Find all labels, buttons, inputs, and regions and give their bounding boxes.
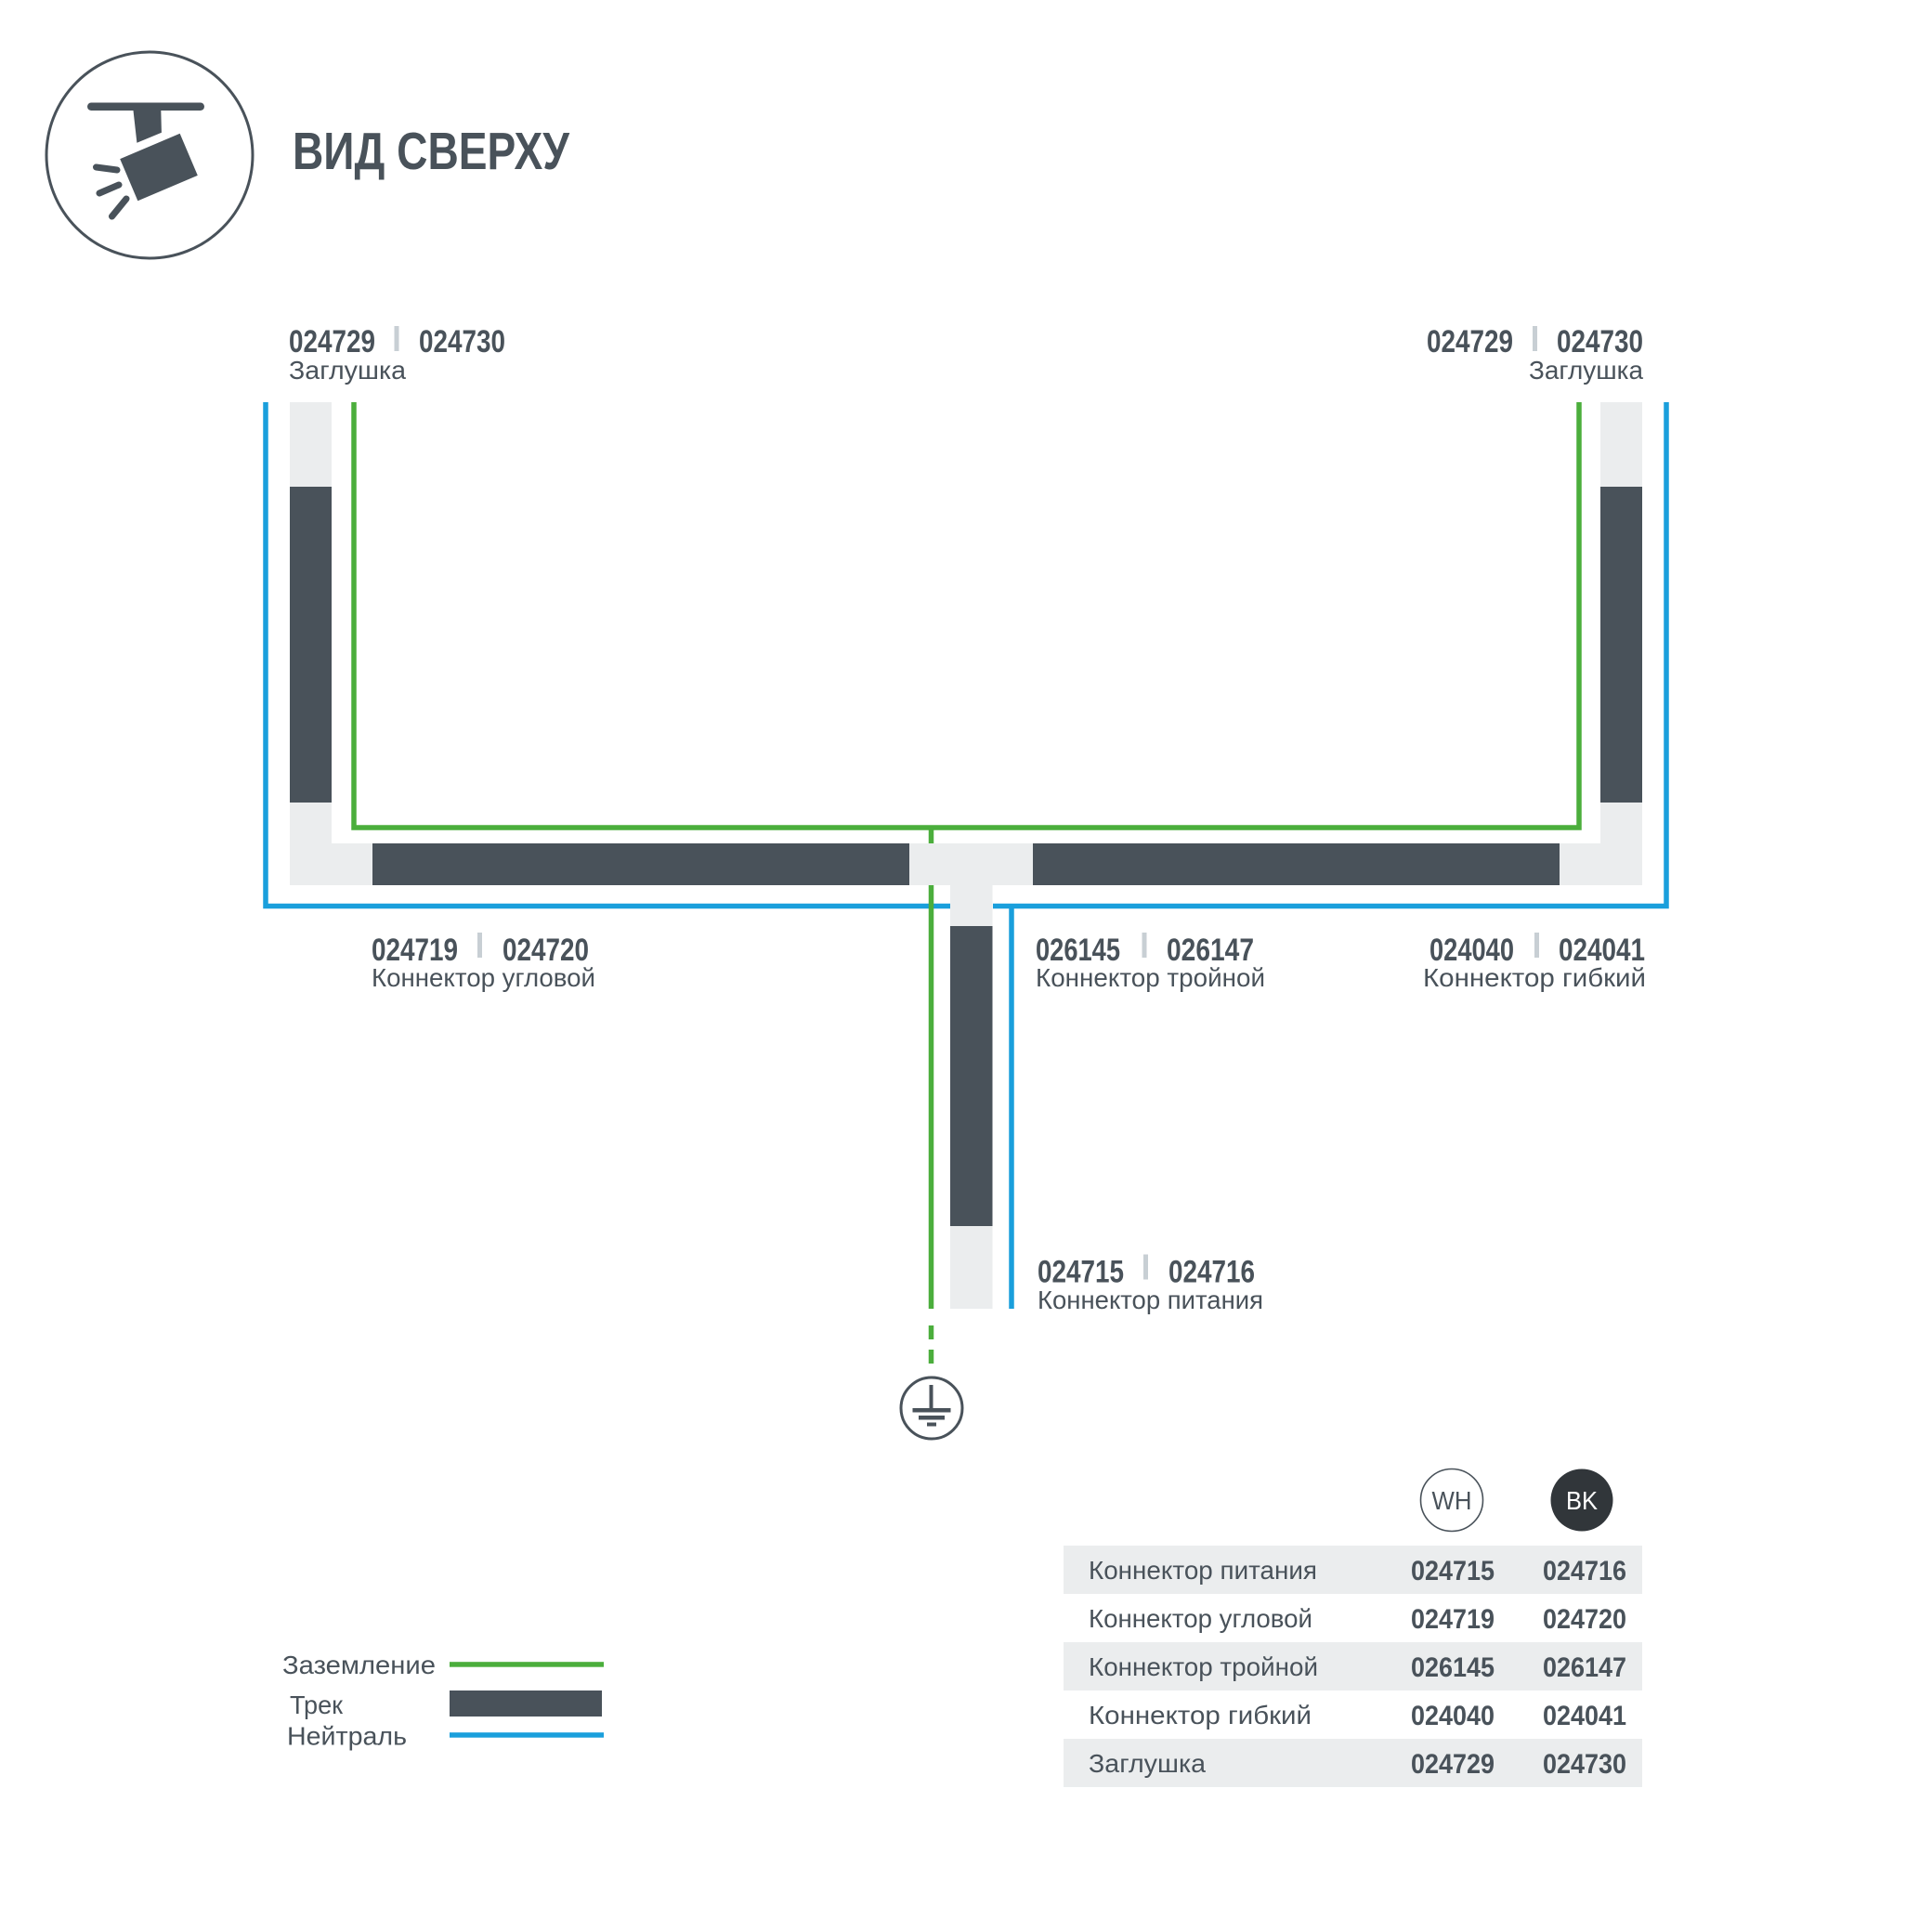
svg-text:024720: 024720: [1543, 1604, 1626, 1635]
svg-text:024729: 024729: [1411, 1749, 1495, 1780]
svg-text:024040: 024040: [1411, 1701, 1495, 1731]
svg-text:024730: 024730: [1543, 1749, 1626, 1780]
svg-text:Коннектор тройной: Коннектор тройной: [1036, 963, 1265, 992]
svg-text:024730: 024730: [1557, 324, 1643, 359]
svg-text:Заглушка: Заглушка: [1089, 1749, 1206, 1778]
svg-text:024715: 024715: [1411, 1556, 1495, 1586]
svg-text:024716: 024716: [1543, 1556, 1626, 1586]
svg-text:Коннектор угловой: Коннектор угловой: [1089, 1604, 1312, 1633]
svg-text:024729: 024729: [289, 324, 375, 359]
svg-text:026147: 026147: [1543, 1652, 1626, 1683]
svg-text:Коннектор гибкий: Коннектор гибкий: [1423, 963, 1646, 992]
svg-text:Заземление: Заземление: [282, 1651, 436, 1679]
svg-text:024730: 024730: [419, 324, 505, 359]
svg-text:026145: 026145: [1411, 1652, 1495, 1683]
svg-text:Трек: Трек: [290, 1690, 344, 1719]
svg-text:024729: 024729: [1427, 324, 1513, 359]
svg-text:ВИД СВЕРХУ: ВИД СВЕРХУ: [293, 122, 569, 181]
svg-text:Коннектор угловой: Коннектор угловой: [372, 963, 595, 992]
svg-text:024719: 024719: [1411, 1604, 1495, 1635]
svg-text:Коннектор питания: Коннектор питания: [1089, 1556, 1317, 1585]
svg-text:Нейтраль: Нейтраль: [287, 1722, 407, 1751]
svg-text:024715: 024715: [1038, 1255, 1124, 1290]
svg-text:024041: 024041: [1543, 1701, 1626, 1731]
svg-text:WH: WH: [1432, 1486, 1472, 1515]
svg-text:Коннектор гибкий: Коннектор гибкий: [1089, 1701, 1312, 1730]
svg-text:Коннектор питания: Коннектор питания: [1038, 1286, 1263, 1314]
svg-text:BK: BK: [1566, 1486, 1598, 1515]
svg-text:Заглушка: Заглушка: [1529, 356, 1643, 385]
svg-text:Коннектор тройной: Коннектор тройной: [1089, 1652, 1318, 1681]
svg-text:024716: 024716: [1168, 1255, 1255, 1290]
svg-text:Заглушка: Заглушка: [289, 356, 406, 385]
